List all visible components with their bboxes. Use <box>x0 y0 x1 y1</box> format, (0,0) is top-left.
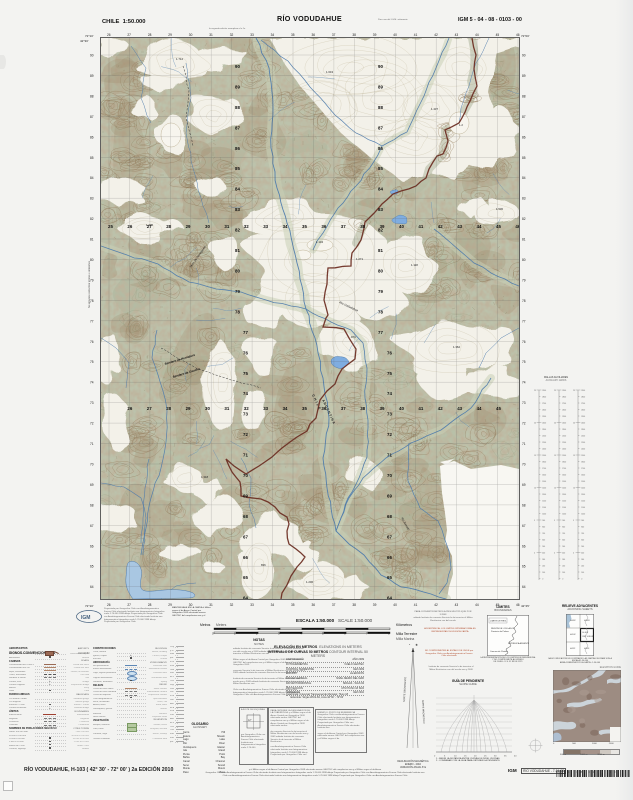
svg-text:84: 84 <box>378 187 383 192</box>
svg-text:33: 33 <box>250 603 254 607</box>
svg-text:2300: 2300 <box>581 429 585 431</box>
svg-text:75: 75 <box>387 371 392 376</box>
svg-text:70: 70 <box>522 463 526 467</box>
svg-text:33: 33 <box>263 224 268 229</box>
svg-text:1.2: 1.2 <box>459 123 463 127</box>
svg-text:1.643: 1.643 <box>326 70 333 74</box>
svg-text:30: 30 <box>205 224 210 229</box>
svg-text:71: 71 <box>522 442 526 446</box>
svg-text:87: 87 <box>90 115 94 119</box>
svg-text:81: 81 <box>522 238 526 242</box>
svg-text:71: 71 <box>387 453 392 458</box>
svg-text:69: 69 <box>387 493 392 498</box>
svg-text:1.437: 1.437 <box>431 107 438 111</box>
svg-text:2900: 2900 <box>562 390 566 392</box>
svg-text:75: 75 <box>522 360 526 364</box>
svg-text:29: 29 <box>554 390 556 392</box>
svg-text:14: 14 <box>554 487 556 489</box>
svg-text:37: 37 <box>341 224 346 229</box>
svg-text:100: 100 <box>562 572 565 574</box>
svg-text:65: 65 <box>522 565 526 569</box>
svg-text:76: 76 <box>243 350 248 355</box>
svg-text:600: 600 <box>542 539 545 541</box>
svg-text:36: 36 <box>312 603 316 607</box>
svg-text:1800: 1800 <box>581 461 585 463</box>
svg-text:836: 836 <box>261 563 266 567</box>
svg-text:1500: 1500 <box>581 481 585 483</box>
svg-text:33: 33 <box>250 33 254 37</box>
svg-text:300: 300 <box>562 559 565 561</box>
svg-text:90: 90 <box>378 64 383 69</box>
svg-text:45: 45 <box>496 224 501 229</box>
svg-text:80: 80 <box>235 269 240 274</box>
svg-text:64: 64 <box>90 585 94 589</box>
svg-text:35: 35 <box>291 33 295 37</box>
svg-text:69: 69 <box>90 483 94 487</box>
svg-text:Comuna de Chaitén: Comuna de Chaitén <box>490 650 508 653</box>
svg-text:89: 89 <box>378 85 383 90</box>
svg-text:72°00': 72°00' <box>521 34 530 38</box>
svg-text:1900: 1900 <box>542 455 546 457</box>
svg-text:2500: 2500 <box>581 416 585 418</box>
svg-text:36: 36 <box>321 406 326 411</box>
svg-text:45: 45 <box>496 406 501 411</box>
svg-text:1000: 1000 <box>581 513 585 515</box>
svg-text:28: 28 <box>148 603 152 607</box>
svg-text:Kilómetros: Kilómetros <box>396 623 412 627</box>
svg-text:90: 90 <box>90 54 94 58</box>
svg-text:1900: 1900 <box>562 455 566 457</box>
svg-text:85: 85 <box>235 166 240 171</box>
svg-text:41: 41 <box>414 603 418 607</box>
svg-text:2300: 2300 <box>542 429 546 431</box>
svg-text:500: 500 <box>581 546 584 548</box>
svg-text:65: 65 <box>243 575 248 580</box>
svg-text:76: 76 <box>387 350 392 355</box>
svg-text:42: 42 <box>434 33 438 37</box>
svg-text:83: 83 <box>378 207 383 212</box>
svg-text:33: 33 <box>263 406 268 411</box>
svg-text:1.206: 1.206 <box>306 580 313 584</box>
svg-text:42: 42 <box>438 406 443 411</box>
svg-text:1100: 1100 <box>562 507 566 509</box>
svg-text:34: 34 <box>283 406 288 411</box>
svg-text:2700: 2700 <box>542 403 546 405</box>
svg-text:77: 77 <box>522 319 526 323</box>
svg-text:9: 9 <box>573 520 574 522</box>
svg-text:39: 39 <box>373 33 377 37</box>
svg-text:1300: 1300 <box>542 494 546 496</box>
svg-text:66: 66 <box>90 544 94 548</box>
svg-text:25: 25 <box>108 224 113 229</box>
svg-text:34: 34 <box>283 224 288 229</box>
svg-text:41: 41 <box>414 33 418 37</box>
svg-text:1000: 1000 <box>562 513 566 515</box>
svg-text:H-113: H-113 <box>584 648 590 650</box>
svg-text:2400: 2400 <box>562 422 566 424</box>
svg-text:RÍO VODUD.: RÍO VODUD. <box>583 635 595 638</box>
svg-text:73: 73 <box>243 412 248 417</box>
svg-text:200: 200 <box>581 565 584 567</box>
svg-text:0: 0 <box>542 578 543 580</box>
svg-text:66: 66 <box>522 544 526 548</box>
svg-text:44: 44 <box>475 33 479 37</box>
svg-text:4: 4 <box>573 552 574 554</box>
svg-text:1.405: 1.405 <box>146 223 153 227</box>
svg-text:700: 700 <box>581 533 584 535</box>
svg-text:1400: 1400 <box>581 487 585 489</box>
svg-text:89: 89 <box>90 74 94 78</box>
svg-text:400: 400 <box>542 552 545 554</box>
svg-text:1700: 1700 <box>542 468 546 470</box>
svg-text:89: 89 <box>235 85 240 90</box>
svg-text:46: 46 <box>516 33 520 37</box>
svg-text:85: 85 <box>378 166 383 171</box>
svg-text:1200: 1200 <box>542 500 546 502</box>
svg-text:65: 65 <box>387 575 392 580</box>
svg-text:1500: 1500 <box>542 481 546 483</box>
svg-text:78: 78 <box>378 309 383 314</box>
svg-text:75: 75 <box>243 371 248 376</box>
svg-text:Meters: Meters <box>216 623 227 627</box>
svg-text:28: 28 <box>166 224 171 229</box>
svg-text:2100: 2100 <box>542 442 546 444</box>
svg-text:68: 68 <box>243 514 248 519</box>
svg-text:2400: 2400 <box>581 422 585 424</box>
svg-text:600: 600 <box>562 539 565 541</box>
svg-text:40: 40 <box>399 224 404 229</box>
svg-text:29: 29 <box>186 224 191 229</box>
svg-text:34: 34 <box>271 603 275 607</box>
svg-text:73: 73 <box>522 401 526 405</box>
svg-text:4: 4 <box>534 552 535 554</box>
svg-text:41: 41 <box>418 406 423 411</box>
svg-text:66: 66 <box>387 555 392 560</box>
svg-text:68: 68 <box>522 503 526 507</box>
svg-text:42: 42 <box>434 603 438 607</box>
svg-text:2500: 2500 <box>562 416 566 418</box>
svg-text:NORTE GEOGRAFICO: NORTE GEOGRAFICO <box>403 677 407 702</box>
svg-text:83: 83 <box>235 207 240 212</box>
svg-text:83: 83 <box>522 197 526 201</box>
svg-text:64: 64 <box>522 585 526 589</box>
svg-text:70: 70 <box>387 473 392 478</box>
svg-text:72: 72 <box>90 422 94 426</box>
svg-text:1100: 1100 <box>581 507 585 509</box>
svg-text:26: 26 <box>107 603 111 607</box>
svg-text:73: 73 <box>90 401 94 405</box>
svg-text:71: 71 <box>90 442 94 446</box>
svg-text:26: 26 <box>127 224 132 229</box>
svg-text:14: 14 <box>534 487 536 489</box>
svg-text:100: 100 <box>542 572 545 574</box>
svg-text:32: 32 <box>244 406 249 411</box>
svg-text:Provincia de Palena: Provincia de Palena <box>491 631 510 633</box>
svg-text:1400: 1400 <box>562 487 566 489</box>
svg-text:87: 87 <box>235 125 240 130</box>
svg-text:1600: 1600 <box>562 474 566 476</box>
svg-text:76: 76 <box>90 340 94 344</box>
svg-text:31: 31 <box>209 33 213 37</box>
svg-text:84: 84 <box>522 176 526 180</box>
svg-text:19: 19 <box>554 455 556 457</box>
svg-text:2000: 2000 <box>562 448 566 450</box>
svg-text:84: 84 <box>90 176 94 180</box>
svg-text:1.530: 1.530 <box>496 207 503 211</box>
svg-text:500: 500 <box>542 546 545 548</box>
svg-text:35: 35 <box>302 224 307 229</box>
svg-text:REGIÓN DE LOS LAGOS: REGIÓN DE LOS LAGOS <box>491 627 515 630</box>
svg-text:1.362: 1.362 <box>453 345 460 349</box>
svg-text:40: 40 <box>399 406 404 411</box>
svg-text:NORTE MAGNETICO: NORTE MAGNETICO <box>421 700 425 724</box>
svg-text:2200: 2200 <box>581 435 585 437</box>
svg-text:H-092: H-092 <box>570 620 576 622</box>
svg-text:86: 86 <box>235 146 240 151</box>
svg-text:2500: 2500 <box>542 416 546 418</box>
svg-text:74: 74 <box>90 381 94 385</box>
svg-text:42°: 42° <box>248 719 252 722</box>
svg-text:29: 29 <box>186 406 191 411</box>
svg-text:600: 600 <box>581 539 584 541</box>
svg-text:30: 30 <box>189 33 193 37</box>
svg-text:100: 100 <box>581 572 584 574</box>
svg-text:42°45': 42°45' <box>521 604 530 608</box>
svg-text:32: 32 <box>244 224 249 229</box>
svg-text:1800: 1800 <box>542 461 546 463</box>
svg-text:300: 300 <box>542 559 545 561</box>
svg-text:2300: 2300 <box>562 429 566 431</box>
svg-text:IGM: IGM <box>81 615 90 621</box>
svg-text:42°30': 42°30' <box>80 39 89 43</box>
svg-text:43: 43 <box>457 224 462 229</box>
svg-text:43: 43 <box>455 33 459 37</box>
svg-text:H-103: H-103 <box>583 632 589 634</box>
svg-text:800: 800 <box>542 526 545 528</box>
svg-text:1100: 1100 <box>542 507 546 509</box>
svg-text:40: 40 <box>393 33 397 37</box>
svg-text:78: 78 <box>522 299 526 303</box>
svg-text:77: 77 <box>378 330 383 335</box>
svg-text:72: 72 <box>243 432 248 437</box>
svg-text:2600: 2600 <box>581 409 585 411</box>
svg-text:78: 78 <box>235 309 240 314</box>
svg-text:30: 30 <box>205 406 210 411</box>
svg-text:37: 37 <box>341 406 346 411</box>
svg-text:70: 70 <box>90 463 94 467</box>
svg-text:72: 72 <box>522 422 526 426</box>
svg-text:700: 700 <box>562 533 565 535</box>
svg-text:87: 87 <box>378 125 383 130</box>
svg-text:1000: 1000 <box>542 513 546 515</box>
svg-text:974: 974 <box>351 335 356 339</box>
svg-text:80: 80 <box>378 269 383 274</box>
svg-text:1900: 1900 <box>581 455 585 457</box>
svg-text:72°10': 72°10' <box>85 604 94 608</box>
svg-text:43: 43 <box>457 406 462 411</box>
svg-text:1.134: 1.134 <box>316 240 323 244</box>
svg-text:27: 27 <box>147 406 152 411</box>
svg-text:69: 69 <box>243 493 248 498</box>
svg-text:37: 37 <box>332 33 336 37</box>
svg-text:26: 26 <box>127 406 132 411</box>
svg-text:200: 200 <box>542 565 545 567</box>
svg-text:28: 28 <box>148 33 152 37</box>
svg-text:80: 80 <box>522 258 526 262</box>
svg-text:LÍMITE DE REG.: LÍMITE DE REG. <box>490 620 507 623</box>
svg-text:67: 67 <box>243 534 248 539</box>
svg-text:2700: 2700 <box>581 403 585 405</box>
svg-text:66: 66 <box>243 555 248 560</box>
svg-text:1300: 1300 <box>562 494 566 496</box>
svg-text:46: 46 <box>515 224 520 229</box>
svg-text:1.271: 1.271 <box>356 257 363 261</box>
svg-text:39: 39 <box>380 224 385 229</box>
svg-text:2600: 2600 <box>562 409 566 411</box>
svg-text:1400: 1400 <box>542 487 546 489</box>
svg-text:0: 0 <box>581 578 582 580</box>
svg-text:27: 27 <box>127 33 131 37</box>
svg-text:1700: 1700 <box>562 468 566 470</box>
svg-text:86: 86 <box>90 135 94 139</box>
svg-text:39: 39 <box>373 603 377 607</box>
svg-text:81: 81 <box>90 238 94 242</box>
svg-text:1600: 1600 <box>542 474 546 476</box>
svg-text:H-102: H-102 <box>570 634 576 636</box>
svg-text:H-093: H-093 <box>584 620 590 622</box>
svg-text:1.118: 1.118 <box>411 263 418 267</box>
svg-text:67: 67 <box>522 524 526 528</box>
svg-text:2000: 2000 <box>581 448 585 450</box>
svg-text:76: 76 <box>522 340 526 344</box>
svg-text:88: 88 <box>378 105 383 110</box>
svg-text:1200: 1200 <box>581 500 585 502</box>
svg-text:800: 800 <box>562 526 565 528</box>
svg-text:85: 85 <box>522 156 526 160</box>
svg-text:88: 88 <box>90 94 94 98</box>
svg-text:400: 400 <box>581 552 584 554</box>
svg-text:31: 31 <box>224 224 229 229</box>
svg-text:82: 82 <box>235 228 240 233</box>
svg-text:70: 70 <box>243 473 248 478</box>
svg-text:*: * <box>409 643 411 647</box>
svg-text:79: 79 <box>522 278 526 282</box>
svg-text:900: 900 <box>542 520 545 522</box>
svg-text:2900: 2900 <box>542 390 546 392</box>
svg-text:86: 86 <box>378 146 383 151</box>
svg-text:72°10': 72°10' <box>85 34 94 38</box>
svg-text:74: 74 <box>522 381 526 385</box>
svg-text:88: 88 <box>235 105 240 110</box>
svg-text:2700: 2700 <box>562 403 566 405</box>
svg-text:2000: 2000 <box>542 448 546 450</box>
svg-text:2200: 2200 <box>562 435 566 437</box>
svg-text:64: 64 <box>387 596 392 601</box>
svg-text:700: 700 <box>542 533 545 535</box>
svg-text:2900: 2900 <box>581 390 585 392</box>
svg-text:1300: 1300 <box>581 494 585 496</box>
svg-text:24: 24 <box>534 422 536 424</box>
svg-text:65: 65 <box>90 565 94 569</box>
svg-text:2400: 2400 <box>542 422 546 424</box>
svg-text:36: 36 <box>312 33 316 37</box>
svg-text:44: 44 <box>477 224 482 229</box>
svg-text:45: 45 <box>496 33 500 37</box>
svg-text:67: 67 <box>90 524 94 528</box>
svg-text:1.712: 1.712 <box>176 57 183 61</box>
svg-text:64: 64 <box>243 596 248 601</box>
svg-text:27: 27 <box>127 603 131 607</box>
svg-text:24: 24 <box>573 422 575 424</box>
svg-text:29: 29 <box>168 33 172 37</box>
svg-text:Metros: Metros <box>200 623 211 627</box>
svg-text:29: 29 <box>534 390 536 392</box>
svg-text:Milla Terrestre: Milla Terrestre <box>396 632 417 636</box>
svg-text:19: 19 <box>573 455 575 457</box>
svg-text:74: 74 <box>243 391 248 396</box>
svg-text:77: 77 <box>243 330 248 335</box>
svg-text:36: 36 <box>321 224 326 229</box>
svg-text:★: ★ <box>415 643 418 647</box>
svg-text:82: 82 <box>90 217 94 221</box>
svg-text:79: 79 <box>378 289 383 294</box>
svg-text:35: 35 <box>291 603 295 607</box>
svg-text:43: 43 <box>455 603 459 607</box>
svg-text:300: 300 <box>581 559 584 561</box>
svg-text:500: 500 <box>562 546 565 548</box>
svg-text:26: 26 <box>107 33 111 37</box>
svg-text:38: 38 <box>352 603 356 607</box>
svg-text:9: 9 <box>554 520 555 522</box>
svg-text:2800: 2800 <box>562 396 566 398</box>
svg-text:86: 86 <box>522 135 526 139</box>
svg-text:9: 9 <box>534 520 535 522</box>
svg-text:83: 83 <box>90 197 94 201</box>
svg-text:75: 75 <box>90 360 94 364</box>
svg-text:35: 35 <box>302 406 307 411</box>
svg-text:1700: 1700 <box>581 468 585 470</box>
svg-text:2600: 2600 <box>542 409 546 411</box>
svg-text:38: 38 <box>360 406 365 411</box>
svg-text:72: 72 <box>387 432 392 437</box>
svg-text:1.318: 1.318 <box>201 475 208 479</box>
svg-text:2100: 2100 <box>562 442 566 444</box>
svg-text:90: 90 <box>522 54 526 58</box>
svg-text:71: 71 <box>243 453 248 458</box>
svg-text:H-112: H-112 <box>570 648 576 650</box>
svg-text:4: 4 <box>554 552 555 554</box>
svg-text:29: 29 <box>573 390 575 392</box>
svg-text:74: 74 <box>387 391 392 396</box>
svg-text:79: 79 <box>235 289 240 294</box>
svg-text:42: 42 <box>438 224 443 229</box>
svg-text:28: 28 <box>166 406 171 411</box>
svg-text:REPÚBLICA ARGENTINA: REPÚBLICA ARGENTINA <box>508 642 529 645</box>
svg-text:400: 400 <box>562 552 565 554</box>
svg-text:44: 44 <box>477 406 482 411</box>
svg-text:32: 32 <box>230 603 234 607</box>
svg-text:84: 84 <box>235 187 240 192</box>
svg-text:85: 85 <box>90 156 94 160</box>
svg-text:0: 0 <box>562 578 563 580</box>
svg-text:81: 81 <box>378 248 383 253</box>
svg-text:200: 200 <box>562 565 565 567</box>
svg-text:39: 39 <box>380 406 385 411</box>
svg-text:73: 73 <box>387 412 392 417</box>
svg-text:34: 34 <box>271 33 275 37</box>
svg-text:1600: 1600 <box>581 474 585 476</box>
svg-text:44: 44 <box>475 603 479 607</box>
